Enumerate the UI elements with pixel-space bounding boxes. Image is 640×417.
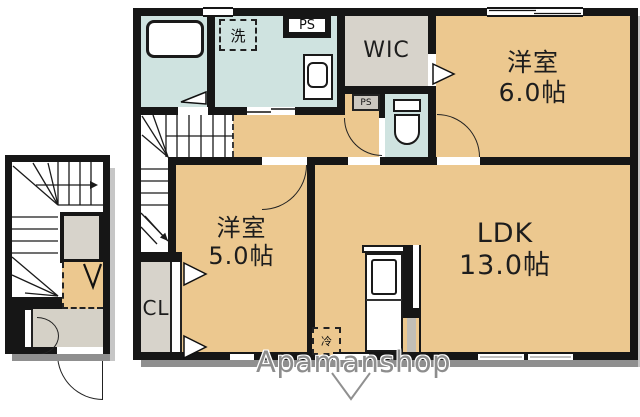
storage-v-mark xyxy=(84,264,101,287)
window-pane-lines xyxy=(489,11,581,14)
plan-linework xyxy=(0,0,640,417)
cl-sliding-door-marker-top xyxy=(184,263,206,285)
stairs-2f-linework xyxy=(141,115,233,244)
watermark-tail xyxy=(332,373,370,399)
sliding-door-lines xyxy=(247,109,295,112)
cl-sliding-door-marker-bottom xyxy=(184,336,206,358)
door-markers xyxy=(181,64,454,358)
stairs-1f-arrowhead xyxy=(90,181,98,189)
bathroom-folding-door-marker xyxy=(181,92,206,104)
wic-sliding-door-marker xyxy=(433,64,454,84)
floor-plan: 洗 PS PS 冷 洋室 6.0帖 LDK 13.0帖 洋室 5.0帖 WIC xyxy=(0,0,640,417)
